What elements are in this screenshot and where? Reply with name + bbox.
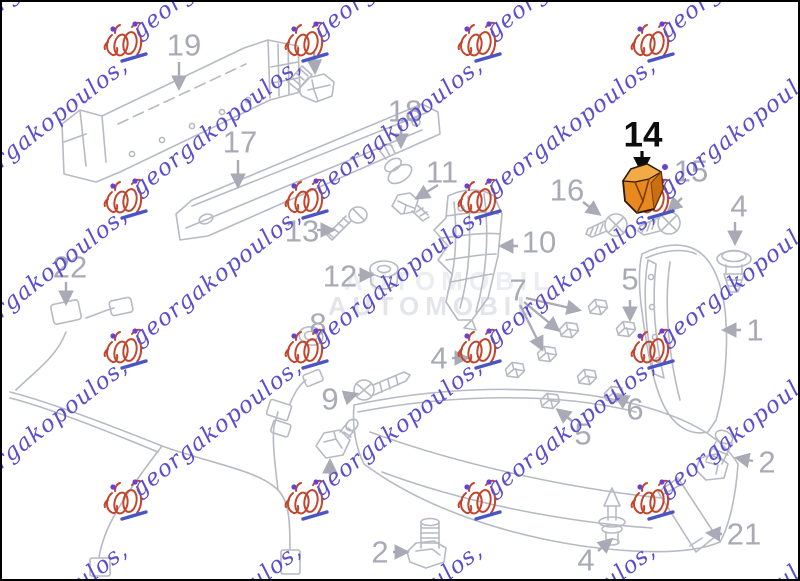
part-14-bracket-highlight <box>2 2 798 579</box>
parts-diagram-image: AUTOMOBIL AUTOMOBIL <box>0 0 800 581</box>
watermark-dot <box>662 164 668 170</box>
